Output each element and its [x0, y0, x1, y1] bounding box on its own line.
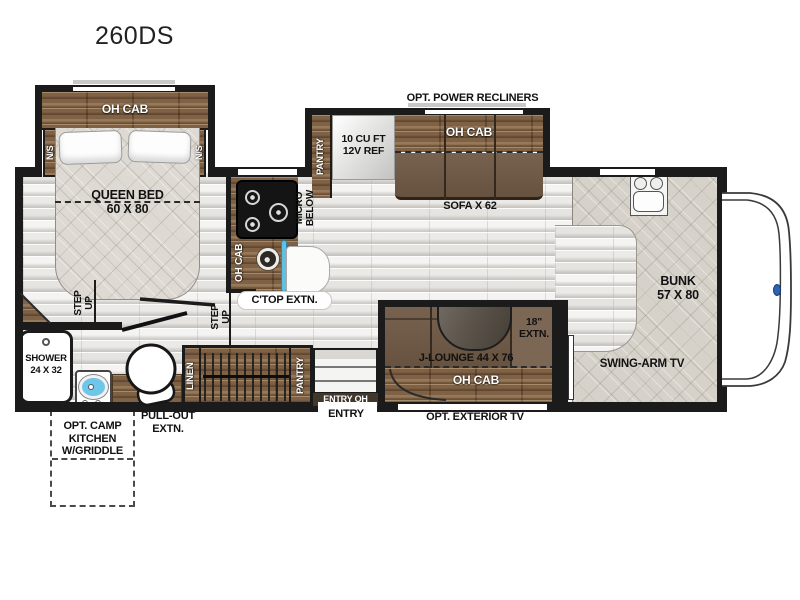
cap-inner — [722, 200, 780, 379]
bunk-label: BUNK 57 X 80 — [645, 274, 711, 302]
pullout-line2: EXTN. — [138, 423, 198, 436]
camp-kitchen-line1: OPT. CAMP — [52, 420, 133, 433]
bath-counter — [112, 374, 182, 404]
bunk-name: BUNK — [645, 274, 711, 288]
jlounge-wall-left — [378, 300, 385, 412]
floorplan-canvas: 260DS BUNK 57 X 80 SWING-ARM TV OH CAB N… — [0, 0, 800, 600]
step-up-rear-line2: UP — [84, 283, 95, 323]
front-sink-basin — [633, 191, 664, 212]
step-up-mid-line1: STEP — [210, 297, 221, 337]
slide-pantry-label: PANTRY — [312, 120, 330, 194]
burner-small-top — [245, 190, 260, 205]
step-up-rear-label: STEP UP — [73, 283, 95, 323]
shower-name: SHOWER — [20, 353, 72, 365]
extn-18-line1: 18" — [512, 316, 556, 328]
ctop-extn-label: C'TOP EXTN. — [251, 294, 317, 307]
bathroom-wall — [23, 322, 122, 330]
fridge-label: 10 CU FT 12V REF — [333, 133, 394, 157]
camp-kitchen-line3: W/GRIDDLE — [52, 445, 133, 458]
plan-model-title: 260DS — [95, 22, 174, 51]
pillow-left — [58, 130, 122, 165]
queen-bed-size: 60 X 80 — [60, 202, 195, 216]
micro-line2: BELOW — [305, 185, 316, 231]
brand-badge — [774, 285, 781, 296]
extn-18-line2: EXTN. — [512, 328, 556, 340]
bedroom-slide-topper — [73, 80, 175, 84]
bath-sink-drain — [88, 384, 94, 390]
wardrobe-divider-left — [199, 347, 201, 405]
swing-arm-tv-strip — [568, 335, 574, 400]
fridge-line2: 12V REF — [333, 145, 394, 157]
hanger-rod — [203, 375, 289, 378]
kitchen-sink — [257, 248, 279, 270]
camp-kitchen-line2: KITCHEN — [52, 433, 133, 446]
micro-below-label: MICRO BELOW — [294, 185, 316, 231]
counter-extension — [286, 246, 330, 294]
wardrobe-pantry-label: PANTRY — [291, 348, 311, 404]
sofa-slide-window — [425, 110, 523, 114]
extn-18-label: 18" EXTN. — [512, 316, 556, 340]
camp-kitchen-divider — [52, 458, 133, 460]
power-recliners-option-label: OPT. POWER RECLINERS — [380, 92, 565, 105]
entry-step-line2 — [315, 380, 376, 382]
jlounge-ohcab-label: OH CAB — [431, 374, 521, 387]
front-cap-outline — [722, 193, 791, 386]
micro-line1: MICRO — [294, 185, 305, 231]
kitchen-counter-edge-left — [226, 177, 231, 292]
bedroom-slide-wall-left — [35, 85, 42, 177]
shower-label: SHOWER 24 X 32 — [20, 353, 72, 376]
shower-drain-icon — [42, 338, 50, 346]
front-sink-knob-right — [650, 177, 663, 190]
burner-small-bottom — [245, 217, 260, 232]
exterior-tv-label: OPT. EXTERIOR TV — [420, 411, 530, 424]
camp-kitchen-label: OPT. CAMP KITCHEN W/GRIDDLE — [52, 420, 133, 458]
entry-step-top — [315, 350, 376, 359]
queen-bed-name: QUEEN BED — [60, 188, 195, 202]
step-up-mid-label: STEP UP — [210, 297, 232, 337]
entry-label: ENTRY — [320, 408, 372, 421]
wall-front — [717, 167, 727, 412]
bedroom-window — [73, 87, 175, 91]
pillow-right — [127, 130, 191, 164]
jlounge-wall-top — [378, 300, 568, 307]
cap-outer — [722, 193, 791, 386]
jlounge-label: J-LOUNGE 44 X 76 — [400, 352, 532, 365]
fridge-line1: 10 CU FT — [333, 133, 394, 145]
front-sink-knob-left — [634, 177, 647, 190]
swing-arm-tv-label: SWING-ARM TV — [583, 358, 701, 371]
pullout-extn-label: PULL-OUT EXTN. — [138, 410, 198, 435]
ctop-extn-pill: C'TOP EXTN. — [237, 291, 332, 310]
front-window — [600, 169, 655, 175]
step-up-rear-line1: STEP — [73, 283, 84, 323]
cooktop — [236, 180, 298, 239]
entry-step-line1 — [315, 366, 376, 368]
bedroom-slide-wall-right — [208, 85, 215, 177]
nightstand-left-label: N/S — [43, 130, 57, 175]
sofa-cushions — [395, 153, 543, 200]
exterior-tv-strip — [398, 404, 547, 410]
linen-label: LINEN — [183, 352, 199, 400]
shower-size: 24 X 32 — [20, 365, 72, 377]
queen-bed-label: QUEEN BED 60 X 80 — [60, 188, 195, 216]
sofa-label: SOFA X 62 — [420, 200, 520, 213]
step-up-mid-line2: UP — [221, 297, 232, 337]
sofa-ohcab-label: OH CAB — [424, 126, 514, 139]
kitchen-window — [238, 169, 297, 175]
bunk-size: 57 X 80 — [645, 288, 711, 302]
nightstand-right-label: N/S — [192, 130, 206, 175]
bedroom-ohcab-label: OH CAB — [90, 103, 160, 116]
burner-large — [269, 203, 288, 222]
kitchen-ohcab-label: OH CAB — [230, 235, 250, 290]
pullout-line1: PULL-OUT — [138, 410, 198, 423]
